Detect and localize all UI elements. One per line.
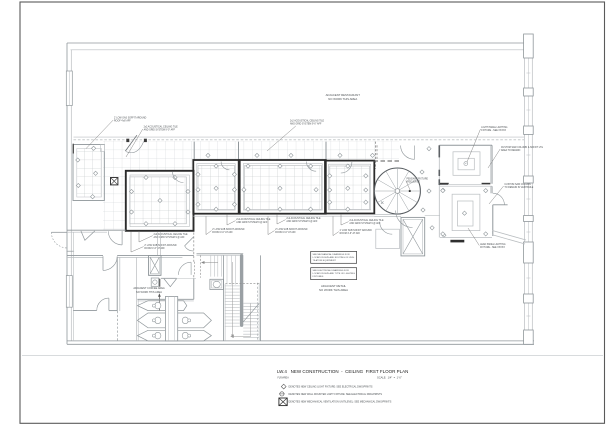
svg-text:AREA TO REMAIN: AREA TO REMAIN [501,149,521,152]
svg-text:2' LOW SUB SOFFIT AROUND: 2' LOW SUB SOFFIT AROUND [275,228,308,231]
svg-text:2x2 ACOUSTICAL CEILING TILE: 2x2 ACOUSTICAL CEILING TILE [154,233,189,236]
svg-text:CUSTOM SAW COLUMN & SOFFIT LTG: CUSTOM SAW COLUMN & SOFFIT LTG [501,146,543,149]
svg-text:ROOM 4'-6" AT AFF: ROOM 4'-6" AT AFF [144,247,165,250]
svg-text:SCALE: 1/4" = 1'-0": SCALE: 1/4" = 1'-0" [377,375,402,379]
svg-text:CUSTOM SAW COLUMN: CUSTOM SAW COLUMN [504,183,531,186]
svg-text:2x2 ACOUSTICAL CEILING TILE: 2x2 ACOUSTICAL CEILING TILE [290,119,325,122]
svg-text:NO WORK THIS AREA: NO WORK THIS AREA [328,97,357,101]
svg-text:FIXTURE - SEE XXXXX: FIXTURE - SEE XXXXX [481,130,506,132]
svg-text:DENOTES NEW MECHANICAL VENTILA: DENOTES NEW MECHANICAL VENTILATION UNIT/… [289,401,392,404]
svg-text:TO REMAIN IN VESTIBULE: TO REMAIN IN VESTIBULE [504,186,533,189]
svg-text:SEE MECHANICAL DRAWINGS FOR: SEE MECHANICAL DRAWINGS FOR [313,253,350,256]
svg-text:FIXTURES: FIXTURES [313,276,324,278]
svg-text:AND GRID SYSTEM 9 @ AFF: AND GRID SYSTEM 9 @ AFF [236,221,268,224]
svg-text:AND GRID SYSTEM 9 @ AFF: AND GRID SYSTEM 9 @ AFF [154,236,186,239]
svg-text:LW.4 NEW CONSTRUCTION - CE: LW.4 NEW CONSTRUCTION - CEILING FIRST FL… [277,369,408,374]
svg-text:LEAD PANEL LIGHTING: LEAD PANEL LIGHTING [480,243,506,246]
svg-text:DENOTES NEW CEILING LIGHT FIXT: DENOTES NEW CEILING LIGHT FIXTURE: SEE E… [289,386,373,389]
svg-text:AND GRID SYSTEM 9 @ AFF: AND GRID SYSTEM 9 @ AFF [349,222,381,225]
svg-text:ROOM 4'-6" AT AFF: ROOM 4'-6" AT AFF [340,232,361,235]
svg-text:LIGHT PANEL LIGHTING: LIGHT PANEL LIGHTING [481,126,507,129]
svg-text:AND GRID SYSTEM 9'-0" AFF: AND GRID SYSTEM 9'-0" AFF [144,128,176,131]
svg-text:2x2 ACOUSTICAL CEILING TILE: 2x2 ACOUSTICAL CEILING TILE [236,218,271,221]
svg-text:2x2 ACOUSTICAL CEILING TILE: 2x2 ACOUSTICAL CEILING TILE [286,217,321,220]
svg-text:ROOM 4'-6" AT AFF: ROOM 4'-6" AT AFF [212,231,233,234]
svg-text:ROOM 4'-6" AT AFF: ROOM 4'-6" AT AFF [275,231,296,234]
svg-text:FIXTURE - SEE XXXXX: FIXTURE - SEE XXXXX [480,247,505,249]
svg-text:2' LOW SUB SOFFIT AROUND: 2' LOW SUB SOFFIT AROUND [340,229,373,232]
svg-text:(FEE) EXIST: (FEE) EXIST [407,182,421,184]
svg-text:NO WORK THIS AREA: NO WORK THIS AREA [136,291,162,294]
svg-text:PENDANT FIXTURE: PENDANT FIXTURE [407,178,429,181]
svg-text:2x2 ACOUSTICAL CEILING TILE: 2x2 ACOUSTICAL CEILING TILE [349,219,384,222]
svg-text:DENOTES NEW WALL MOUNTED LIGHT: DENOTES NEW WALL MOUNTED LIGHT FIXTURE: … [289,393,383,396]
svg-text:2' LOW GAS SOFFIT AROUND: 2' LOW GAS SOFFIT AROUND [114,117,147,120]
svg-text:2' LOW SUB SOFFIT AROUND: 2' LOW SUB SOFFIT AROUND [212,228,245,231]
svg-text:ADJACENT COFFEE AREA: ADJACENT COFFEE AREA [133,287,165,290]
svg-text:LOCATION SIZE AND TYPE OF LIGH: LOCATION SIZE AND TYPE OF LIGHTING [313,272,356,275]
svg-text:AND GRID SYSTEM 9'-0" AFF: AND GRID SYSTEM 9'-0" AFF [290,122,322,125]
svg-text:AND GRID SYSTEM 9 @ AFF: AND GRID SYSTEM 9 @ AFF [286,220,318,223]
svg-text:NO WORK THIS AREA: NO WORK THIS AREA [319,288,348,292]
svg-text:TILATION EQUIPMENT: TILATION EQUIPMENT [313,259,337,262]
svg-text:SEE ELECTRICAL DRAWINGS FOR: SEE ELECTRICAL DRAWINGS FOR [313,269,350,272]
svg-text:2x2 ACOUSTICAL CEILING TILE: 2x2 ACOUSTICAL CEILING TILE [144,125,179,128]
svg-text:LOCATION SIZE AND ROUTING OF V: LOCATION SIZE AND ROUTING OF VEN- [313,256,355,259]
svg-text:ROOF 4'x8' AFF: ROOF 4'x8' AFF [114,120,131,123]
svg-text:FLR/AREA: FLR/AREA [278,376,290,379]
